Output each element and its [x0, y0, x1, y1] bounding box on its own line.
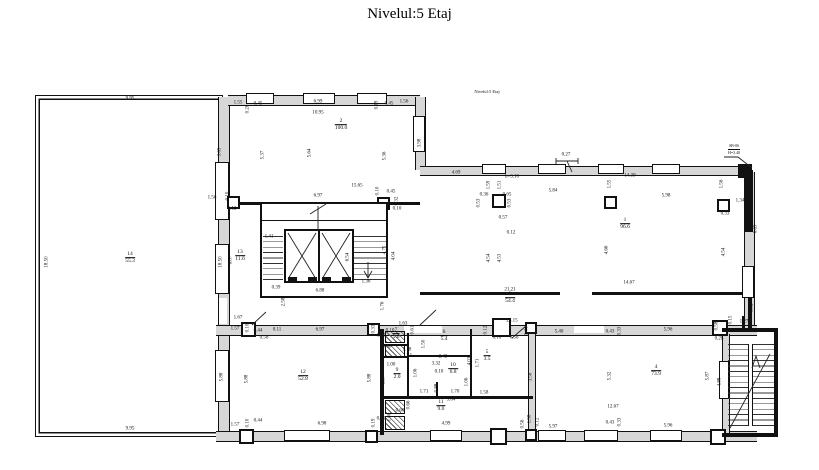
- dimension-label: 2.58: [282, 298, 287, 307]
- room-area: 100.0: [335, 126, 347, 132]
- room-number: 5: [484, 349, 491, 356]
- dimension-label: 1.51: [498, 181, 503, 190]
- dimension-label: 1.70: [451, 390, 460, 395]
- room-area: 55.3: [125, 259, 135, 265]
- dimension-label: 6.54: [346, 253, 351, 262]
- dimension-label: 1.18: [403, 348, 412, 353]
- room-label: 196.6: [620, 217, 630, 231]
- dimension-label: 0.44: [525, 327, 530, 336]
- dimension-label: 0.20: [246, 105, 251, 114]
- room-label: 53.5: [484, 349, 491, 363]
- dimension-label: 5.04: [447, 398, 456, 403]
- dimension-label: 0.10: [376, 187, 381, 196]
- dimension-label: 0.12: [228, 207, 237, 212]
- room-label: 473.9: [651, 364, 661, 378]
- dimension-label: 4.03: [468, 357, 473, 366]
- dimension-label: 3.65: [218, 148, 223, 157]
- room-label: 92.0: [394, 367, 401, 381]
- dimension-label: h=3.10: [505, 175, 519, 180]
- dimension-label: 0.65: [503, 193, 512, 198]
- dimension-label: 1.57: [231, 327, 240, 332]
- dimension-label: 0.27: [562, 153, 571, 158]
- dimension-label: 0.10: [435, 370, 444, 375]
- dimension-label: 1.00: [388, 413, 393, 422]
- dimension-label: 0.33: [721, 212, 730, 217]
- dimension-label: 9.95: [126, 97, 135, 102]
- room-label: 2100.0: [335, 118, 347, 132]
- room-label: 1455.3: [125, 251, 135, 265]
- dimension-label: 0.45: [385, 102, 394, 107]
- dimension-label: 0.10: [493, 336, 502, 341]
- room-number: 4: [651, 364, 661, 371]
- room-number: 6: [441, 329, 448, 336]
- dimension-label: 5.97: [549, 425, 558, 430]
- dimension-label: 0.43: [606, 421, 615, 426]
- dimension-label: 14.39: [624, 174, 635, 179]
- dimension-label: 5.96: [664, 328, 673, 333]
- dimension-label: 5.40: [555, 330, 564, 335]
- dimension-label: 5.37: [261, 151, 266, 160]
- dimension-label: 1.71: [420, 390, 429, 395]
- dimension-label: 0.45: [387, 190, 396, 195]
- room-area: 73.9: [651, 372, 661, 378]
- dimension-label: 1.34: [736, 199, 745, 204]
- dimension-label: 0.56: [521, 420, 526, 429]
- dimension-label: 0.12: [536, 418, 541, 427]
- room-number: 9: [394, 367, 401, 374]
- dimension-label: 5.36: [383, 152, 388, 161]
- room-area: 11.6: [235, 257, 245, 263]
- room-number: 3: [505, 291, 515, 298]
- room-area: 5.4: [441, 337, 448, 343]
- dimension-label: 5.88: [368, 374, 373, 383]
- dimension-label: 0.44: [254, 329, 263, 334]
- dimension-label: 4.75: [383, 246, 388, 255]
- room-label: 106.8: [448, 362, 458, 376]
- dimension-label: 5.84: [549, 189, 558, 194]
- dimension-label: 0.45: [254, 102, 263, 107]
- dimension-label: 1.50: [422, 340, 427, 349]
- dimension-label: 0.57: [499, 216, 508, 221]
- dimension-label: 18.50: [219, 256, 224, 267]
- dimension-label: 0.12: [484, 326, 489, 335]
- room-number: 2: [335, 118, 347, 125]
- dimension-label: 1.55: [608, 180, 613, 189]
- dimension-label: 4.53: [498, 254, 503, 263]
- dimension-label: 1.27: [740, 320, 749, 325]
- dimension-label: 0.60: [396, 409, 405, 414]
- room-label: 71.6: [393, 327, 400, 341]
- room-label: 1252.8: [298, 369, 308, 383]
- dimension-label: 1.56: [208, 196, 217, 201]
- room-number: 12: [298, 369, 308, 376]
- dimension-label: 1.56: [720, 180, 725, 189]
- dimension-label: 5.98: [662, 194, 671, 199]
- dimension-label: 6.99: [314, 100, 323, 105]
- dimension-label: 0.43: [606, 330, 615, 335]
- dimension-label: 1.36: [362, 280, 371, 285]
- floorplan-page: Nivelul:5 Etaj: [0, 0, 819, 470]
- dimension-label: 1.71: [476, 359, 481, 368]
- dimension-label: 1.57: [231, 423, 240, 428]
- dimension-label: 0.56: [260, 336, 269, 341]
- dimension-label: 6.98: [318, 422, 327, 427]
- dimension-label: 0.19: [375, 101, 380, 110]
- dimension-label: 3.32: [432, 362, 441, 367]
- dimension-label: 5.88: [220, 373, 225, 382]
- room-label: 119.0: [436, 399, 445, 413]
- dimension-label: 0.10: [377, 334, 386, 339]
- dimension-label: 9.95: [126, 427, 135, 432]
- dimension-label: 5.32: [608, 372, 613, 381]
- dimension-label: 0.11: [273, 328, 282, 333]
- dimension-label: 0.53: [508, 199, 513, 208]
- room-area: 1.6: [393, 335, 400, 341]
- dimension-label: 4.66: [605, 246, 610, 255]
- dimension-label: 0.36: [480, 193, 489, 198]
- dimension-label: 4.69: [452, 171, 461, 176]
- dimension-label: 0.44: [254, 419, 263, 424]
- room-area: 6.8: [448, 370, 458, 376]
- dimension-label: 1.41: [265, 235, 274, 240]
- dimension-label: 5.96: [664, 424, 673, 429]
- dimension-label: 1.92: [750, 304, 755, 313]
- dimension-label: 0.39: [272, 286, 281, 291]
- dimension-label: 5.88: [245, 375, 250, 384]
- dimension-label: 1.59: [487, 181, 492, 190]
- dimension-label: 18.50: [45, 256, 50, 267]
- dimension-label: 1.63: [399, 322, 408, 327]
- room-area: 54.4: [505, 299, 515, 305]
- dimension-label: 0.88: [435, 384, 440, 393]
- dimension-label: 1.06: [465, 378, 470, 387]
- dimension-label: 1.55: [234, 101, 243, 106]
- dimension-label: 1.58: [528, 415, 533, 424]
- dimension-label: 6.87: [229, 256, 234, 265]
- dimension-label: 10.95: [312, 111, 323, 116]
- dimension-label: 0.61: [411, 326, 416, 335]
- dimension-label: 0.58: [715, 322, 720, 331]
- dimension-label: 0.10: [246, 419, 251, 428]
- dimension-label: 6.65: [754, 225, 759, 234]
- room-number: 10: [448, 362, 458, 369]
- dimension-label: 12.67: [607, 405, 618, 410]
- room-number: 13: [235, 249, 245, 256]
- dimension-label: 4.54: [487, 254, 492, 263]
- dimension-label: 28.15: [506, 319, 517, 324]
- dimension-label: 6.97: [316, 328, 325, 333]
- dimension-label: 4.88: [718, 378, 723, 387]
- dimension-label: 0.32: [395, 197, 400, 206]
- dimension-label: 0.10: [377, 417, 386, 422]
- dimension-label: 14.67: [623, 281, 634, 286]
- dimension-label: 5.87: [706, 372, 711, 381]
- room-number: 1: [620, 217, 630, 224]
- room-number: 11: [436, 399, 445, 406]
- dimension-label: 0.56: [510, 336, 519, 341]
- room-label: 65.4: [441, 329, 448, 343]
- dimension-label: 0.10: [246, 324, 251, 333]
- dimension-label: 1.06: [414, 369, 419, 378]
- dimension-label: 0.66: [407, 401, 412, 410]
- room-area: 9.0: [436, 407, 445, 413]
- dimension-label: 1.76: [381, 302, 386, 311]
- dimension-label: 1.56: [400, 100, 409, 105]
- dimension-label: 0.33: [372, 325, 377, 334]
- room-number: 14: [125, 251, 135, 258]
- room-area: 2.0: [394, 375, 401, 381]
- dimension-label: 2.42: [439, 355, 448, 360]
- dimension-label: 6.97: [314, 194, 323, 199]
- dimension-label: 4.99: [442, 422, 451, 427]
- room-area: 3.5: [484, 357, 491, 363]
- dimension-label: 4.54: [722, 248, 727, 257]
- dimension-label: 0.33: [618, 418, 623, 427]
- dimension-label: 0.53: [477, 199, 482, 208]
- dimension-label: 0.10: [226, 192, 231, 201]
- room-area: 96.6: [620, 225, 630, 231]
- dimension-label: 0.10: [393, 207, 402, 212]
- dimension-label: 0.28: [715, 337, 724, 342]
- dimension-label: 6.88: [316, 289, 325, 294]
- dimension-label: 3.98: [418, 139, 423, 148]
- room-number: 7: [393, 327, 400, 334]
- dimension-label: 1.1: [406, 354, 412, 359]
- dimension-label: 0.12: [507, 231, 516, 236]
- dimension-label: 3.58: [529, 373, 534, 382]
- dimension-label: 0.08: [383, 345, 392, 350]
- dimension-label: 1.58: [480, 391, 489, 396]
- room-label: 1311.6: [235, 249, 245, 263]
- dimension-label: 5.37: [382, 376, 387, 385]
- dimension-label: 15.65: [351, 184, 362, 189]
- plan: 9.9518.5018.506.879.951.550.200.456.9910…: [0, 0, 819, 470]
- dimension-label: 0.33: [618, 327, 623, 336]
- room-area: 52.8: [298, 377, 308, 383]
- room-label: 354.4: [505, 291, 515, 305]
- dimension-label: 1.67: [234, 316, 243, 321]
- dimension-label: 4.04: [392, 252, 397, 261]
- dimension-label: 0.15: [729, 316, 734, 325]
- dimension-label: 5.64: [308, 149, 313, 158]
